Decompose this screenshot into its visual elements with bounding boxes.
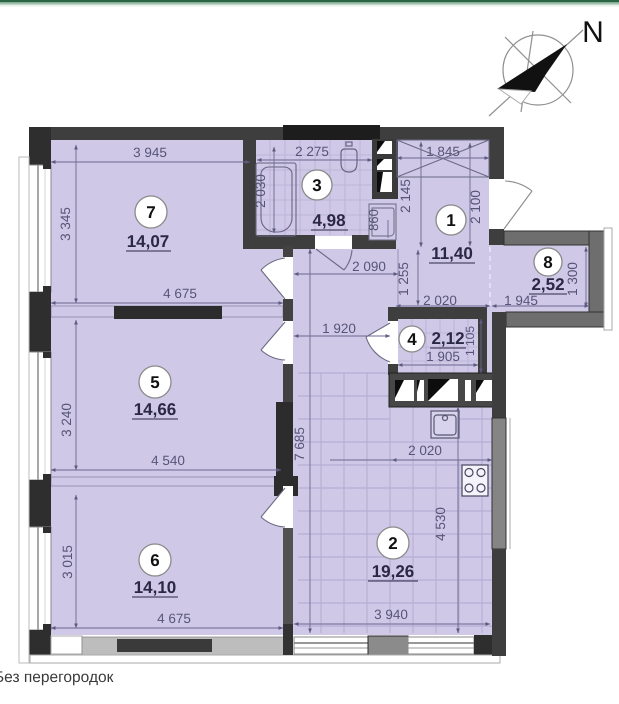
svg-text:7 685: 7 685 bbox=[292, 427, 307, 461]
svg-text:1 300: 1 300 bbox=[565, 262, 580, 296]
svg-text:3 345: 3 345 bbox=[58, 207, 73, 241]
svg-text:4 530: 4 530 bbox=[433, 507, 448, 541]
svg-text:6: 6 bbox=[150, 551, 159, 570]
svg-text:3 945: 3 945 bbox=[133, 145, 167, 160]
svg-text:4,98: 4,98 bbox=[312, 211, 345, 230]
svg-text:Без перегородок: Без перегородок bbox=[0, 669, 114, 686]
svg-text:3 015: 3 015 bbox=[60, 545, 75, 579]
svg-text:8: 8 bbox=[543, 253, 552, 272]
svg-text:1 920: 1 920 bbox=[322, 321, 356, 336]
svg-text:1 255: 1 255 bbox=[396, 262, 411, 296]
svg-text:4 540: 4 540 bbox=[151, 453, 185, 468]
svg-text:14,10: 14,10 bbox=[134, 578, 177, 597]
svg-text:N: N bbox=[582, 16, 604, 49]
svg-text:2 020: 2 020 bbox=[408, 443, 442, 458]
svg-text:7: 7 bbox=[146, 203, 155, 222]
svg-text:14,66: 14,66 bbox=[134, 400, 177, 419]
svg-text:2 030: 2 030 bbox=[253, 174, 268, 208]
svg-text:2 090: 2 090 bbox=[352, 259, 386, 274]
svg-text:14,07: 14,07 bbox=[127, 232, 170, 251]
svg-text:2: 2 bbox=[388, 534, 397, 553]
svg-text:2 020: 2 020 bbox=[423, 293, 457, 308]
svg-text:19,26: 19,26 bbox=[372, 562, 415, 581]
svg-text:2 145: 2 145 bbox=[398, 179, 413, 213]
svg-text:2,12: 2,12 bbox=[431, 329, 464, 348]
svg-text:11,40: 11,40 bbox=[431, 244, 473, 263]
svg-text:1 945: 1 945 bbox=[504, 293, 538, 308]
svg-text:2 275: 2 275 bbox=[295, 144, 329, 159]
svg-text:4: 4 bbox=[407, 330, 417, 349]
svg-text:1 845: 1 845 bbox=[426, 144, 460, 159]
svg-text:3 940: 3 940 bbox=[374, 607, 408, 622]
svg-text:5: 5 bbox=[150, 373, 159, 392]
svg-text:4 675: 4 675 bbox=[163, 286, 197, 301]
svg-text:3 240: 3 240 bbox=[59, 403, 74, 437]
svg-text:3: 3 bbox=[312, 176, 321, 195]
svg-text:860: 860 bbox=[366, 209, 381, 231]
svg-text:1 105: 1 105 bbox=[463, 326, 477, 356]
svg-text:1: 1 bbox=[446, 211, 455, 230]
svg-text:1 905: 1 905 bbox=[426, 349, 460, 364]
svg-text:4 675: 4 675 bbox=[157, 611, 191, 626]
svg-text:2,52: 2,52 bbox=[531, 275, 564, 294]
svg-text:2 100: 2 100 bbox=[468, 190, 483, 224]
